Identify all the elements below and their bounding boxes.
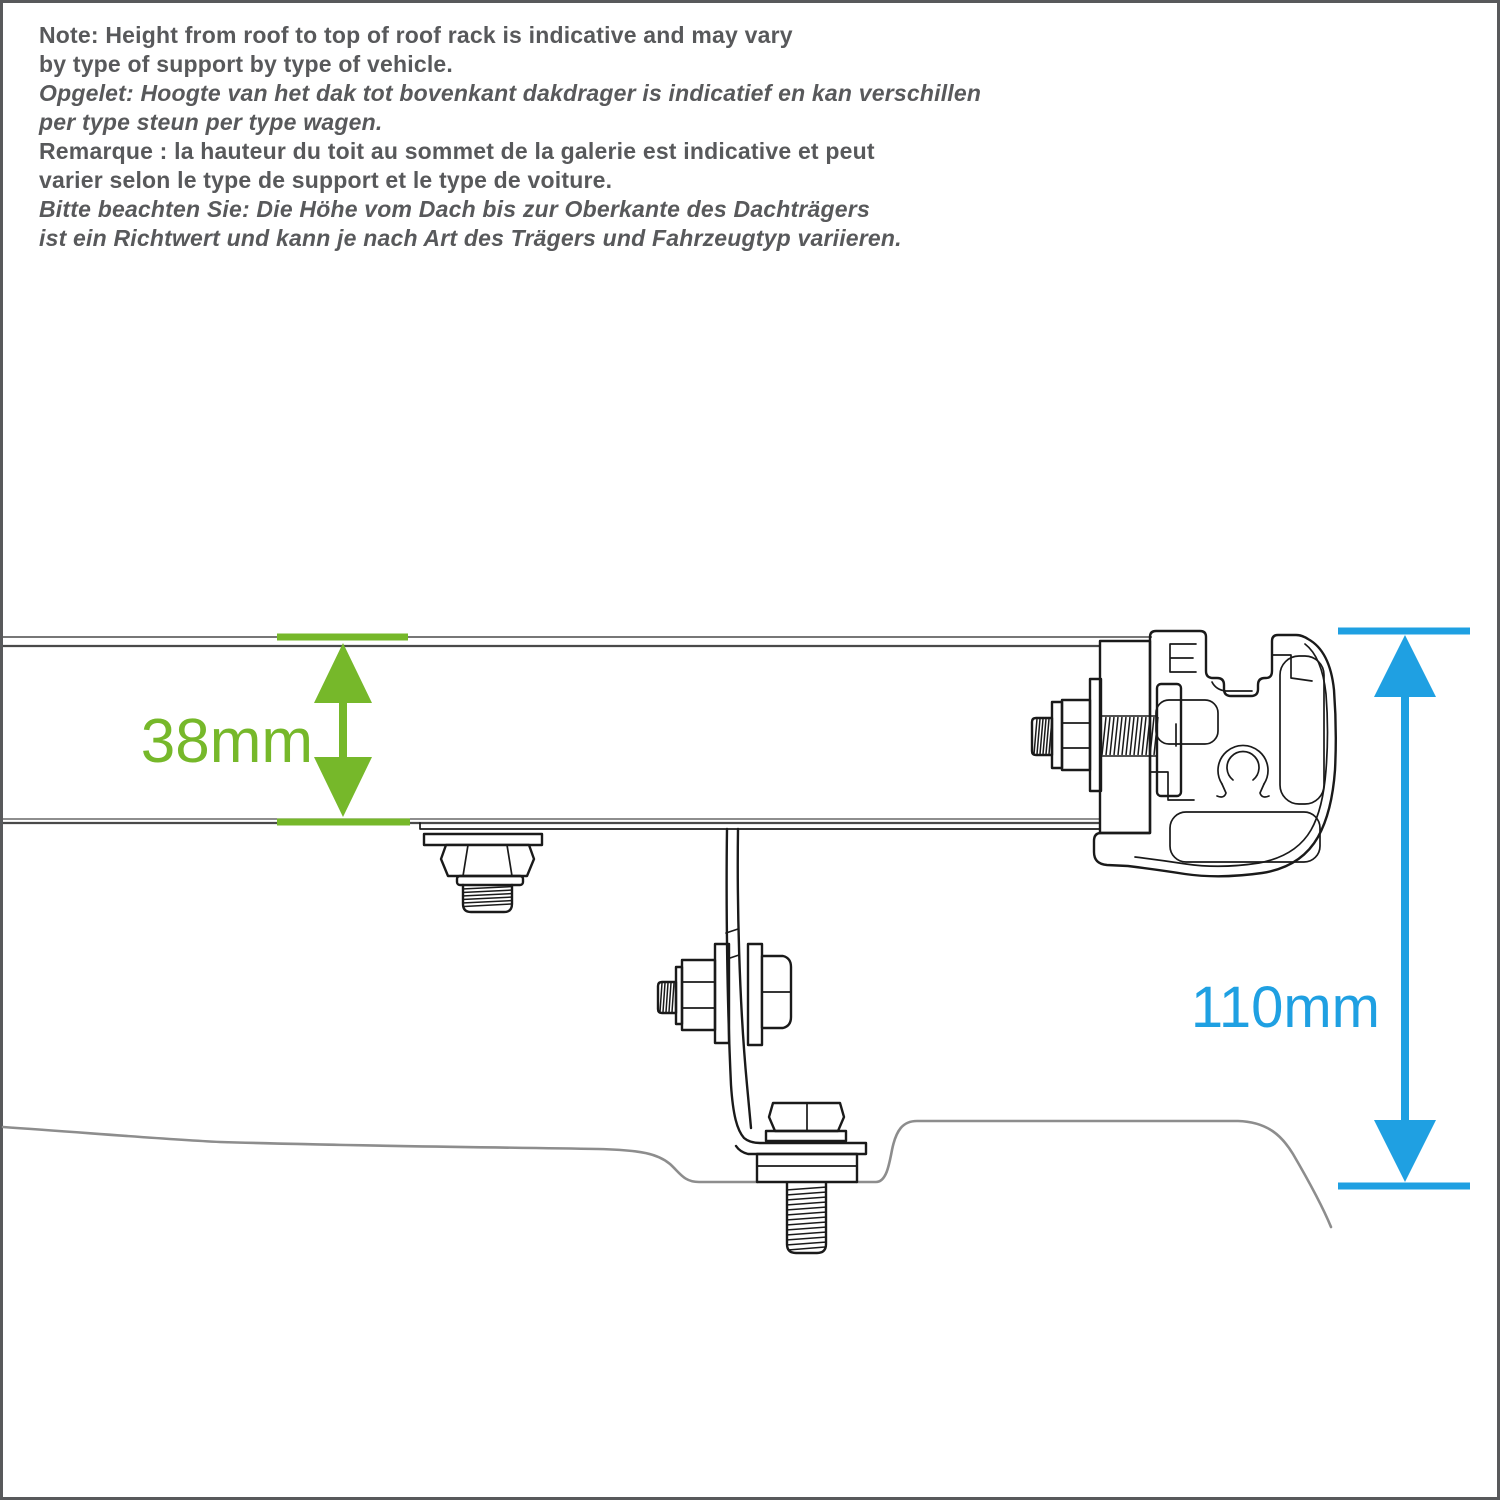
dimension-rack-height: 38mm xyxy=(141,637,410,822)
foot-bolt xyxy=(766,1103,846,1253)
bracket-bolt-nut xyxy=(682,960,715,1030)
bracket-bolt xyxy=(658,944,791,1045)
profile-right-cavity xyxy=(1280,656,1324,804)
bracket-bolt-tip-threads xyxy=(660,983,674,1012)
dim38-arrowhead-up xyxy=(314,643,372,703)
bracket-nut-facets xyxy=(682,982,715,1008)
foot-bolt-flange xyxy=(766,1131,846,1141)
profile-screw-channel xyxy=(1217,745,1269,797)
profile-top-tab xyxy=(1272,640,1312,681)
profile-bolt-nut xyxy=(1062,700,1090,770)
roof-line-left xyxy=(3,1127,757,1182)
profile-left-cavity xyxy=(1156,700,1218,744)
profile-bolt-washer-small xyxy=(1052,702,1062,768)
nut-facet-lines xyxy=(1062,723,1090,748)
technical-diagram: 38mm 110mm xyxy=(0,0,1500,1500)
dim38-label: 38mm xyxy=(141,707,313,776)
dim110-arrowhead-down xyxy=(1374,1120,1436,1182)
dim110-label: 110mm xyxy=(1191,975,1380,1040)
dim38-arrowhead-down xyxy=(314,757,372,817)
profile-bottom-cavity xyxy=(1170,812,1320,862)
profile-bolt-tip-threads xyxy=(1034,719,1052,754)
vehicle-roof-line xyxy=(3,1121,1331,1227)
bracket-bolt-washer-right xyxy=(748,944,762,1045)
foot-bolt-stud-threads xyxy=(786,1187,827,1250)
screw-channel-inner-arc xyxy=(1227,752,1259,780)
roof-line-right xyxy=(857,1121,1331,1227)
floor-bolt-hex-head xyxy=(441,845,534,876)
floor-bolt xyxy=(420,823,1100,912)
dimension-total-height: 110mm xyxy=(1191,631,1470,1186)
profile-channel-inner-line xyxy=(1212,682,1252,691)
floor-bolt-stud-threads xyxy=(462,887,513,907)
profile-bolt xyxy=(1032,679,1158,791)
screw-channel-right-lip xyxy=(1260,784,1269,797)
dim110-arrowhead-up xyxy=(1374,635,1436,697)
floor-bolt-collar xyxy=(457,876,523,885)
bracket-foot-block xyxy=(757,1154,857,1182)
bracket-nut-body xyxy=(682,960,715,1030)
screw-channel-left-lip xyxy=(1217,784,1226,797)
profile-e-slot xyxy=(1170,644,1196,672)
nut-body xyxy=(1062,700,1090,770)
profile-inner-wall-line xyxy=(1135,644,1328,866)
floor-bolt-washer-plate xyxy=(424,834,542,845)
